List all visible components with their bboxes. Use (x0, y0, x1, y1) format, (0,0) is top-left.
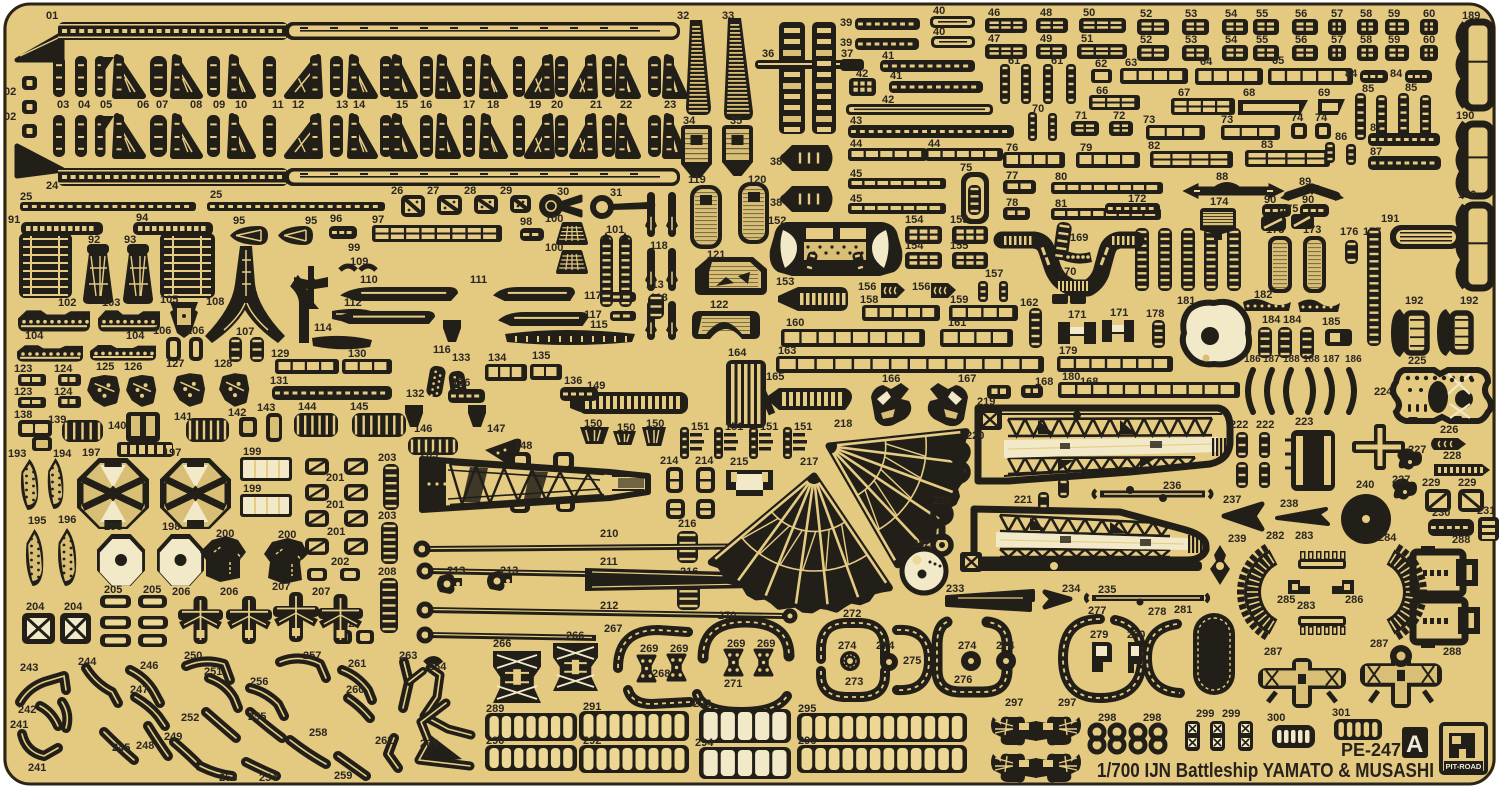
svg-text:204: 204 (26, 601, 45, 613)
svg-text:123: 123 (14, 363, 32, 375)
svg-text:189: 189 (1462, 10, 1480, 22)
svg-text:54: 54 (1225, 8, 1238, 20)
svg-text:144: 144 (298, 401, 317, 413)
svg-text:106: 106 (153, 325, 171, 337)
svg-text:108: 108 (206, 296, 224, 308)
svg-text:113: 113 (646, 279, 664, 291)
svg-text:136: 136 (452, 377, 470, 389)
svg-text:91: 91 (8, 214, 20, 226)
svg-text:92: 92 (88, 234, 100, 246)
svg-text:104: 104 (25, 330, 44, 342)
svg-text:208: 208 (378, 566, 396, 578)
svg-text:136: 136 (564, 375, 582, 387)
svg-text:254: 254 (259, 772, 278, 784)
svg-text:56: 56 (1295, 8, 1307, 20)
svg-text:154: 154 (905, 214, 924, 226)
svg-text:71: 71 (1075, 110, 1087, 122)
svg-text:210: 210 (600, 528, 618, 540)
svg-text:294: 294 (695, 737, 714, 749)
svg-text:78: 78 (1006, 197, 1018, 209)
svg-text:58: 58 (1360, 34, 1372, 46)
svg-text:201: 201 (327, 526, 345, 538)
svg-text:53: 53 (1185, 8, 1197, 20)
svg-text:222: 222 (1230, 419, 1248, 431)
svg-text:75: 75 (960, 162, 972, 174)
svg-text:184: 184 (1262, 314, 1281, 326)
svg-text:A: A (1406, 731, 1423, 758)
svg-text:100: 100 (545, 213, 563, 225)
svg-text:241: 241 (28, 762, 46, 774)
svg-text:114: 114 (314, 322, 333, 334)
svg-text:68: 68 (1243, 87, 1255, 99)
svg-text:270: 270 (718, 610, 736, 622)
svg-text:255: 255 (248, 711, 266, 723)
svg-text:298: 298 (1098, 712, 1116, 724)
svg-text:275: 275 (903, 655, 921, 667)
svg-text:87: 87 (1370, 146, 1382, 158)
svg-text:266: 266 (566, 630, 584, 642)
svg-text:280: 280 (1127, 629, 1145, 641)
svg-text:47: 47 (988, 33, 1000, 45)
svg-text:40: 40 (933, 5, 945, 17)
svg-text:172: 172 (1128, 193, 1146, 205)
svg-text:297: 297 (1058, 697, 1076, 709)
svg-text:04: 04 (78, 99, 91, 111)
svg-text:229: 229 (1422, 477, 1440, 489)
svg-text:41: 41 (890, 70, 902, 82)
svg-text:59: 59 (1388, 8, 1400, 20)
svg-text:139: 139 (48, 414, 66, 426)
svg-text:241: 241 (10, 719, 28, 731)
svg-text:155: 155 (950, 240, 968, 252)
svg-text:292: 292 (583, 735, 601, 747)
svg-text:221: 221 (1014, 494, 1032, 506)
svg-text:158: 158 (860, 294, 878, 306)
svg-text:212: 212 (600, 600, 618, 612)
svg-text:40: 40 (933, 26, 945, 38)
svg-text:129: 129 (271, 348, 289, 360)
svg-text:PE-247: PE-247 (1341, 740, 1401, 760)
svg-text:244: 244 (78, 656, 97, 668)
svg-text:99: 99 (348, 242, 360, 254)
svg-text:107: 107 (236, 326, 254, 338)
svg-text:289: 289 (486, 703, 504, 715)
svg-text:274: 274 (838, 640, 857, 652)
svg-text:225: 225 (1408, 355, 1426, 367)
svg-text:298: 298 (1143, 712, 1161, 724)
svg-text:156: 156 (858, 281, 876, 293)
svg-text:49: 49 (1040, 33, 1052, 45)
svg-text:45: 45 (850, 193, 862, 205)
svg-text:151: 151 (794, 421, 812, 433)
svg-text:39: 39 (840, 17, 852, 29)
svg-text:232: 232 (912, 538, 930, 550)
svg-text:02: 02 (4, 111, 16, 123)
svg-text:222: 222 (1256, 419, 1274, 431)
svg-text:288: 288 (1452, 534, 1470, 546)
svg-text:61: 61 (1008, 55, 1020, 67)
svg-text:214: 214 (695, 455, 714, 467)
svg-text:215: 215 (730, 456, 748, 468)
svg-text:151: 151 (691, 421, 709, 433)
svg-text:41: 41 (882, 50, 894, 62)
svg-text:250: 250 (184, 650, 202, 662)
svg-text:153: 153 (776, 276, 794, 288)
svg-text:124: 124 (54, 386, 73, 398)
svg-text:277: 277 (1088, 605, 1106, 617)
svg-text:267: 267 (604, 623, 622, 635)
svg-text:44: 44 (850, 138, 863, 150)
svg-text:296: 296 (798, 735, 816, 747)
svg-text:85: 85 (1362, 83, 1374, 95)
svg-text:96: 96 (330, 213, 342, 225)
svg-text:30: 30 (557, 186, 569, 198)
svg-text:55: 55 (1256, 34, 1268, 46)
svg-text:252: 252 (181, 712, 199, 724)
svg-text:126: 126 (124, 361, 142, 373)
svg-text:20: 20 (551, 99, 563, 111)
svg-text:238: 238 (1280, 498, 1298, 510)
svg-text:69: 69 (1318, 87, 1330, 99)
svg-text:247: 247 (130, 684, 148, 696)
svg-text:125: 125 (96, 361, 114, 373)
svg-text:60: 60 (1423, 8, 1435, 20)
svg-text:207: 207 (272, 581, 290, 593)
svg-text:26: 26 (391, 185, 403, 197)
svg-text:33: 33 (722, 10, 734, 22)
svg-text:100: 100 (545, 242, 563, 254)
svg-text:131: 131 (270, 375, 288, 387)
svg-text:256: 256 (250, 676, 268, 688)
svg-text:145: 145 (350, 401, 368, 413)
svg-text:80: 80 (1055, 171, 1067, 183)
svg-text:233: 233 (946, 583, 964, 595)
svg-text:111: 111 (470, 274, 487, 286)
svg-text:106: 106 (186, 325, 204, 337)
svg-text:213: 213 (500, 565, 518, 577)
svg-text:127: 127 (166, 358, 184, 370)
svg-text:148: 148 (514, 440, 532, 452)
svg-text:128: 128 (214, 358, 232, 370)
svg-text:74: 74 (1291, 112, 1304, 124)
svg-text:206: 206 (220, 586, 238, 598)
svg-text:237: 237 (1223, 494, 1241, 506)
svg-text:180: 180 (1062, 371, 1080, 383)
svg-text:207: 207 (312, 586, 330, 598)
svg-text:164: 164 (728, 347, 747, 359)
svg-text:236: 236 (1163, 480, 1181, 492)
svg-text:12: 12 (292, 99, 304, 111)
svg-text:174: 174 (1210, 196, 1229, 208)
svg-text:284: 284 (1378, 532, 1397, 544)
svg-text:274: 274 (996, 640, 1015, 652)
svg-text:58: 58 (1360, 8, 1372, 20)
svg-text:57: 57 (1331, 8, 1343, 20)
svg-text:159: 159 (950, 294, 968, 306)
svg-text:103: 103 (102, 297, 120, 309)
svg-text:199: 199 (243, 446, 261, 458)
svg-text:187: 187 (1263, 354, 1280, 365)
svg-text:52: 52 (1140, 8, 1152, 20)
svg-text:197: 197 (163, 447, 181, 459)
svg-text:77: 77 (1006, 170, 1018, 182)
svg-text:105: 105 (160, 294, 178, 306)
svg-text:03: 03 (57, 99, 69, 111)
svg-text:83: 83 (1261, 139, 1273, 151)
svg-text:52: 52 (1140, 34, 1152, 46)
svg-text:286: 286 (1345, 594, 1363, 606)
svg-text:271: 271 (724, 678, 742, 690)
svg-text:245: 245 (112, 742, 130, 754)
svg-text:76: 76 (1006, 142, 1018, 154)
svg-text:293: 293 (693, 698, 711, 710)
svg-text:199: 199 (243, 483, 261, 495)
svg-text:79: 79 (1080, 142, 1092, 154)
svg-text:202: 202 (331, 556, 349, 568)
svg-text:10: 10 (235, 99, 247, 111)
svg-text:269: 269 (670, 643, 688, 655)
svg-text:259: 259 (334, 770, 352, 782)
svg-text:07: 07 (156, 99, 168, 111)
svg-text:82: 82 (1148, 140, 1160, 152)
svg-text:285: 285 (1277, 594, 1295, 606)
svg-text:55: 55 (1256, 8, 1268, 20)
svg-text:60: 60 (1423, 34, 1435, 46)
svg-text:203: 203 (378, 452, 396, 464)
svg-text:119: 119 (688, 174, 706, 186)
svg-text:15: 15 (396, 99, 408, 111)
svg-text:42: 42 (856, 68, 868, 80)
svg-text:269: 269 (640, 643, 658, 655)
svg-text:01: 01 (46, 10, 58, 22)
svg-text:169: 169 (1070, 232, 1088, 244)
svg-text:16: 16 (420, 99, 432, 111)
svg-text:45: 45 (850, 168, 862, 180)
svg-text:64: 64 (1200, 56, 1213, 68)
svg-text:299: 299 (1196, 708, 1214, 720)
svg-text:213: 213 (447, 565, 465, 577)
svg-text:84: 84 (1345, 68, 1358, 80)
svg-text:229: 229 (1458, 477, 1476, 489)
svg-text:211: 211 (600, 556, 618, 568)
svg-text:231: 231 (1477, 505, 1495, 517)
svg-text:85: 85 (1405, 82, 1417, 94)
svg-text:151: 151 (760, 421, 778, 433)
svg-text:19: 19 (529, 99, 541, 111)
svg-text:214: 214 (660, 455, 679, 467)
svg-text:165: 165 (766, 371, 784, 383)
svg-text:297: 297 (1005, 697, 1023, 709)
svg-text:179: 179 (1059, 345, 1077, 357)
svg-text:167: 167 (958, 373, 976, 385)
svg-text:27: 27 (427, 185, 439, 197)
svg-text:300: 300 (1267, 712, 1285, 724)
svg-text:234: 234 (1062, 583, 1081, 595)
svg-text:223: 223 (1295, 416, 1313, 428)
svg-text:203: 203 (378, 510, 396, 522)
svg-text:253: 253 (219, 772, 237, 784)
svg-text:02: 02 (4, 86, 16, 98)
svg-text:157: 157 (985, 268, 1003, 280)
svg-text:251: 251 (204, 666, 222, 678)
svg-text:243: 243 (20, 662, 38, 674)
svg-text:161: 161 (948, 317, 966, 329)
svg-text:73: 73 (1221, 114, 1233, 126)
svg-text:282: 282 (1266, 530, 1284, 542)
svg-text:206: 206 (172, 586, 190, 598)
svg-text:205: 205 (143, 584, 161, 596)
svg-text:204: 204 (64, 601, 83, 613)
svg-text:05: 05 (100, 99, 112, 111)
svg-text:217: 217 (800, 456, 818, 468)
svg-text:24: 24 (46, 180, 59, 192)
svg-text:104: 104 (126, 330, 145, 342)
svg-text:54: 54 (1225, 34, 1238, 46)
svg-text:283: 283 (1295, 530, 1313, 542)
svg-text:187: 187 (1323, 354, 1340, 365)
svg-text:288: 288 (1443, 646, 1461, 658)
svg-text:194: 194 (53, 448, 72, 460)
svg-text:35: 35 (730, 115, 742, 127)
svg-text:175: 175 (1280, 203, 1298, 215)
svg-text:168: 168 (1035, 376, 1053, 388)
svg-text:246: 246 (140, 660, 158, 672)
svg-text:191: 191 (1381, 213, 1399, 225)
svg-text:260: 260 (346, 684, 364, 696)
svg-text:178: 178 (1146, 308, 1164, 320)
svg-text:170: 170 (1058, 266, 1076, 278)
svg-text:123: 123 (14, 386, 32, 398)
svg-text:116: 116 (433, 344, 451, 356)
svg-text:182: 182 (1254, 289, 1272, 301)
svg-text:299: 299 (1222, 708, 1240, 720)
svg-text:133: 133 (452, 352, 470, 364)
svg-text:73: 73 (1143, 114, 1155, 126)
svg-text:110: 110 (360, 274, 378, 286)
svg-text:291: 291 (583, 701, 601, 713)
svg-text:163: 163 (778, 345, 796, 357)
svg-text:265: 265 (420, 738, 438, 750)
svg-text:32: 32 (677, 10, 689, 22)
svg-text:50: 50 (1083, 7, 1095, 19)
svg-text:273: 273 (845, 676, 863, 688)
svg-text:201: 201 (326, 499, 344, 511)
svg-text:31: 31 (610, 187, 622, 199)
svg-text:156: 156 (912, 281, 930, 293)
svg-text:193: 193 (8, 448, 26, 460)
svg-text:101: 101 (606, 224, 624, 236)
svg-text:201: 201 (326, 472, 344, 484)
svg-text:283: 283 (1297, 600, 1315, 612)
svg-text:272: 272 (843, 608, 861, 620)
svg-text:264: 264 (428, 661, 447, 673)
svg-text:51: 51 (1081, 33, 1093, 45)
svg-text:11: 11 (272, 99, 284, 111)
svg-text:46: 46 (988, 7, 1000, 19)
svg-text:94: 94 (136, 212, 149, 224)
svg-text:227: 227 (1408, 444, 1426, 456)
svg-text:38: 38 (770, 156, 782, 168)
svg-text:08: 08 (190, 99, 202, 111)
svg-text:38: 38 (770, 197, 782, 209)
svg-text:135: 135 (532, 350, 550, 362)
svg-text:132: 132 (406, 388, 424, 400)
svg-text:36: 36 (762, 48, 774, 60)
svg-text:188: 188 (1303, 354, 1320, 365)
svg-text:295: 295 (798, 703, 816, 715)
svg-text:290: 290 (486, 735, 504, 747)
svg-text:239: 239 (1228, 533, 1246, 545)
svg-text:142: 142 (228, 407, 246, 419)
svg-text:160: 160 (786, 317, 804, 329)
svg-text:134: 134 (488, 352, 507, 364)
svg-text:269: 269 (757, 638, 775, 650)
svg-text:185: 185 (1322, 316, 1340, 328)
svg-text:176: 176 (1340, 226, 1358, 238)
svg-text:150: 150 (646, 418, 664, 430)
svg-text:195: 195 (28, 515, 46, 527)
svg-text:150: 150 (617, 422, 635, 434)
svg-text:28: 28 (464, 185, 476, 197)
svg-text:138: 138 (14, 409, 32, 421)
svg-text:227: 227 (1392, 474, 1410, 486)
svg-text:192: 192 (1460, 295, 1478, 307)
svg-text:235: 235 (1098, 584, 1116, 596)
svg-text:230: 230 (1432, 507, 1450, 519)
svg-text:279: 279 (1090, 629, 1108, 641)
svg-text:287: 287 (1370, 638, 1388, 650)
svg-text:84: 84 (1390, 68, 1403, 80)
svg-text:266: 266 (493, 638, 511, 650)
svg-text:240: 240 (1356, 479, 1374, 491)
svg-text:257: 257 (303, 650, 321, 662)
svg-text:70: 70 (1032, 103, 1044, 115)
svg-text:276: 276 (954, 674, 972, 686)
svg-text:287: 287 (1264, 646, 1282, 658)
svg-text:29: 29 (500, 185, 512, 197)
svg-text:209: 209 (420, 449, 438, 461)
svg-text:228: 228 (1443, 450, 1461, 462)
svg-text:220: 220 (966, 430, 984, 442)
svg-text:200: 200 (278, 529, 296, 541)
svg-text:34: 34 (683, 115, 696, 127)
svg-text:281: 281 (1174, 604, 1192, 616)
svg-text:98: 98 (520, 216, 532, 228)
svg-text:278: 278 (1148, 606, 1166, 618)
svg-text:25: 25 (20, 191, 32, 203)
svg-text:90: 90 (1264, 194, 1276, 206)
svg-text:121: 121 (707, 249, 725, 261)
svg-text:274: 274 (958, 640, 977, 652)
svg-text:186: 186 (1345, 354, 1362, 365)
svg-text:25: 25 (210, 189, 222, 201)
svg-text:22: 22 (620, 99, 632, 111)
svg-text:171: 171 (1068, 309, 1086, 321)
svg-text:18: 18 (487, 99, 499, 111)
svg-text:21: 21 (590, 99, 602, 111)
svg-text:86: 86 (1335, 131, 1347, 143)
svg-text:130: 130 (348, 348, 366, 360)
svg-text:88: 88 (1216, 171, 1228, 183)
svg-text:198: 198 (104, 521, 122, 533)
svg-text:74: 74 (1315, 112, 1328, 124)
svg-text:150: 150 (584, 418, 602, 430)
svg-text:66: 66 (1096, 85, 1108, 97)
svg-text:39: 39 (840, 37, 852, 49)
svg-text:196: 196 (58, 514, 76, 526)
svg-text:65: 65 (1272, 55, 1284, 67)
svg-text:61: 61 (1051, 55, 1063, 67)
